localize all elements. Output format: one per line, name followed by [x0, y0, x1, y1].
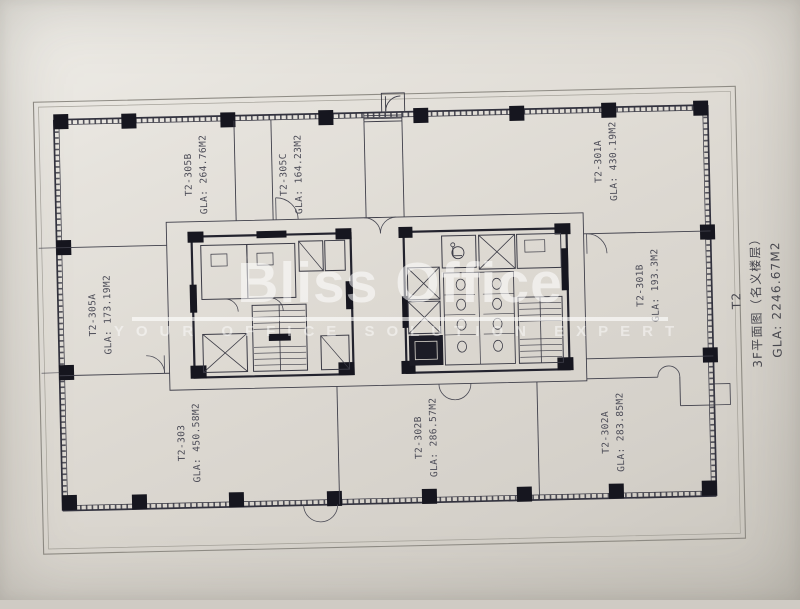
unit-gla: GLA: 286.57M2 [426, 397, 443, 477]
unit-id: T2-301B [633, 249, 649, 323]
left-core [187, 228, 354, 379]
right-core [398, 223, 573, 374]
unit-label-t2-305a: T2-305A GLA: 173.19M2 [86, 275, 117, 355]
unit-label-t2-305b: T2-305B GLA: 264.76M2 [181, 134, 212, 214]
unit-label-t2-302b: T2-302B GLA: 286.57M2 [412, 397, 443, 477]
total-gla: GLA: 2246.67M2 [765, 231, 788, 367]
floor-title-block: T2 3F平面图（名义楼层） GLA: 2246.67M2 [726, 231, 788, 368]
floor-plan-label: 3F平面图（名义楼层） [746, 232, 769, 368]
floorplan-drawing [0, 0, 800, 609]
unit-gla: GLA: 430.19M2 [606, 121, 623, 201]
unit-label-t2-303: T2-303 GLA: 450.58M2 [175, 403, 206, 483]
floorplan-sheet: T2-305B GLA: 264.76M2 T2-305C GLA: 164.2… [0, 0, 800, 609]
unit-gla: GLA: 450.58M2 [189, 403, 206, 483]
unit-label-t2-301a: T2-301A GLA: 430.19M2 [591, 121, 622, 201]
unit-label-t2-305c: T2-305C GLA: 164.23M2 [277, 134, 308, 214]
unit-label-t2-302a: T2-302A GLA: 283.85M2 [598, 392, 629, 472]
unit-gla: GLA: 164.23M2 [291, 134, 308, 214]
unit-label-t2-301b: T2-301B GLA: 193.3M2 [633, 248, 664, 322]
unit-gla: GLA: 283.85M2 [613, 392, 630, 472]
unit-gla: GLA: 264.76M2 [196, 134, 213, 214]
unit-gla: GLA: 173.19M2 [100, 275, 117, 355]
unit-gla: GLA: 193.3M2 [648, 248, 664, 322]
